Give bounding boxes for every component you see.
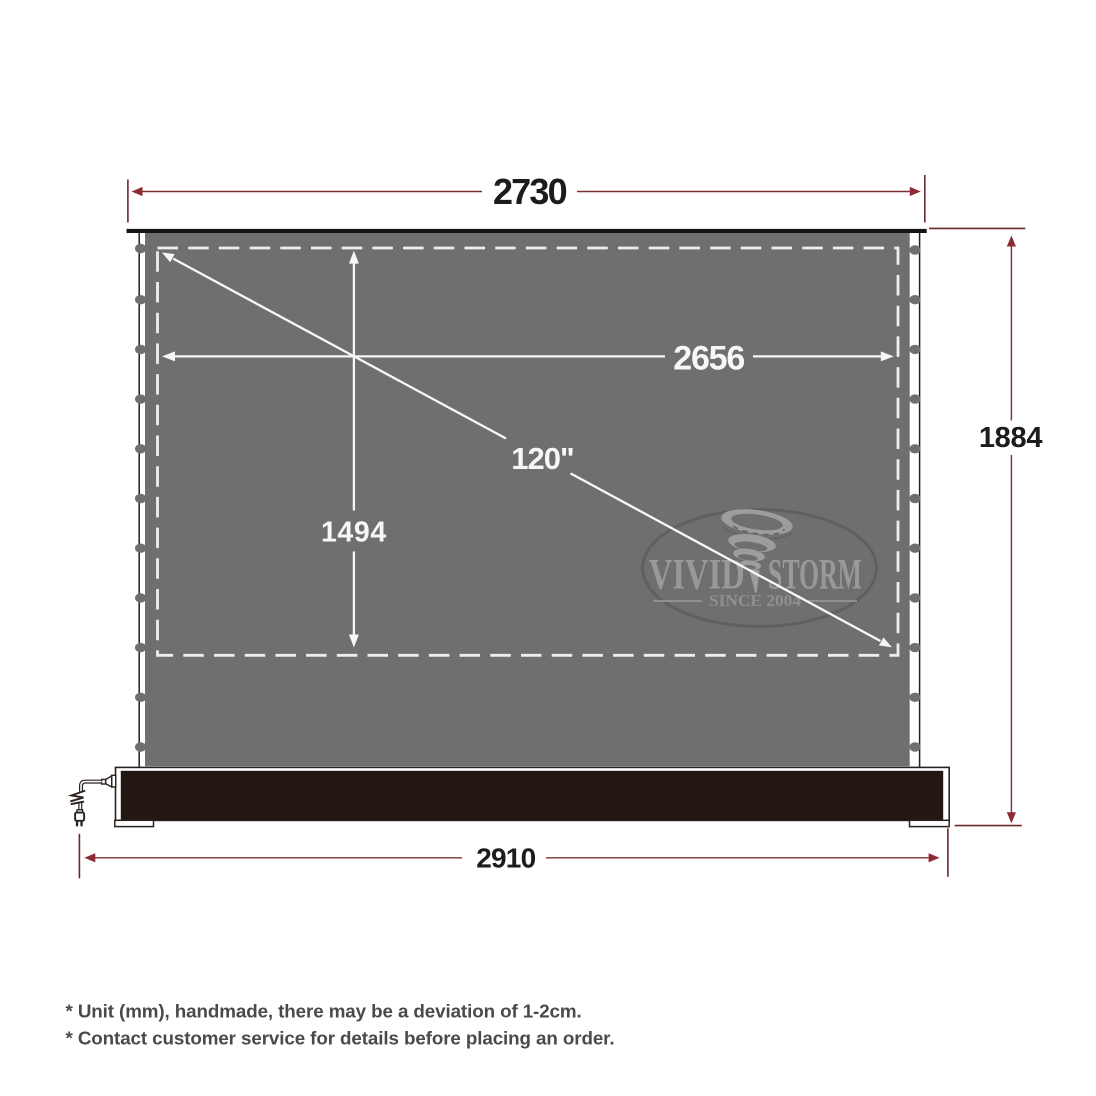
- svg-text:SINCE 2004: SINCE 2004: [709, 591, 801, 610]
- svg-text:2656: 2656: [673, 340, 744, 378]
- svg-text:2910: 2910: [476, 843, 535, 874]
- svg-text:1494: 1494: [321, 516, 387, 548]
- svg-text:1884: 1884: [979, 422, 1042, 454]
- svg-text:* Unit (mm), handmade, there m: * Unit (mm), handmade, there may be a de…: [66, 1000, 582, 1021]
- svg-text:120": 120": [511, 441, 573, 476]
- svg-text:* Contact customer service for: * Contact customer service for details b…: [66, 1028, 615, 1049]
- svg-text:2730: 2730: [493, 171, 567, 212]
